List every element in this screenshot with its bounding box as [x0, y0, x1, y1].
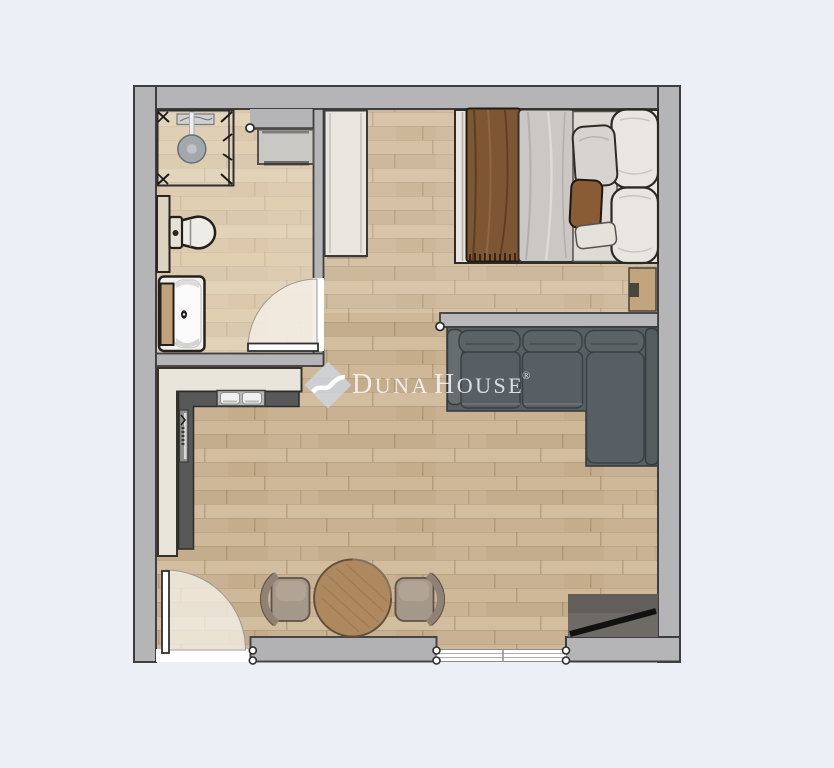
svg-text:®: ® — [522, 370, 530, 382]
svg-text:DUNA: DUNA — [352, 369, 430, 400]
svg-text:HOUSE: HOUSE — [434, 369, 524, 400]
